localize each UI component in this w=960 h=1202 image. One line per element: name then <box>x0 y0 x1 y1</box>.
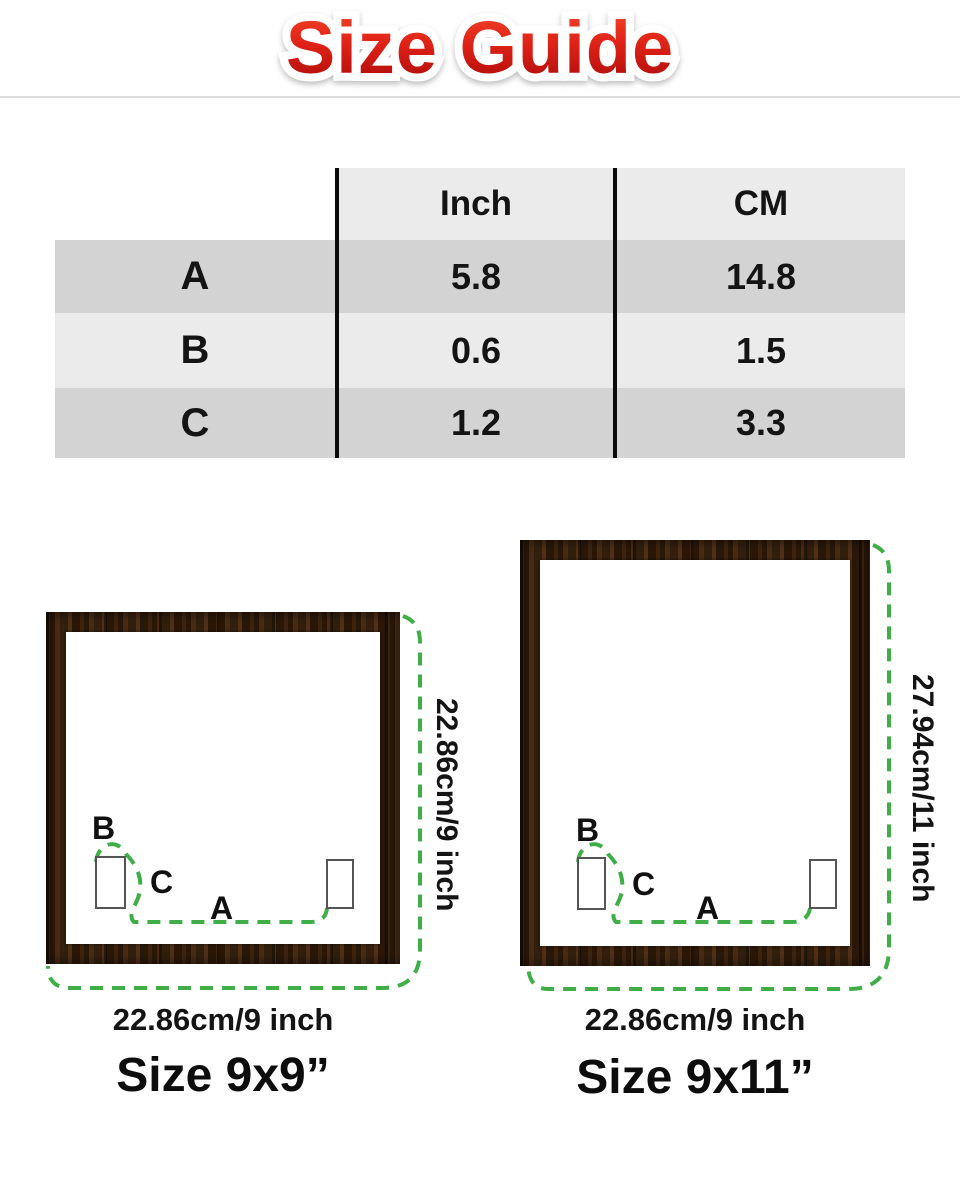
frame-diagram-9x9: B C A 22.86cm/9 inch 22.86cm/9 inch Size… <box>30 600 470 1180</box>
table-corner-cell <box>55 168 335 240</box>
dimension-bracket-path <box>48 616 420 988</box>
table-row-c: C 1.2 3.3 <box>55 388 905 458</box>
height-dimension-label-9x9: 22.86cm/9 inch <box>426 630 466 980</box>
page-title-text: Size Guide <box>286 6 674 89</box>
value-c-inch: 1.2 <box>335 388 617 458</box>
marker-a: A <box>696 892 719 924</box>
marker-c: C <box>632 868 655 900</box>
hanger-slot-left <box>96 857 125 908</box>
value-c-cm: 3.3 <box>617 388 905 458</box>
height-dimension-label-9x11: 27.94cm/11 inch <box>902 608 942 968</box>
marker-a: A <box>210 892 233 924</box>
row-label-c: C <box>55 388 335 458</box>
hanger-slot-right <box>810 860 836 908</box>
col-header-cm: CM <box>617 168 905 240</box>
value-b-inch: 0.6 <box>335 313 617 388</box>
marker-c: C <box>150 866 173 898</box>
value-a-cm: 14.8 <box>617 240 905 313</box>
width-dimension-label-9x9: 22.86cm/9 inch <box>46 1002 400 1038</box>
table-row-b: B 0.6 1.5 <box>55 313 905 388</box>
value-b-cm: 1.5 <box>617 313 905 388</box>
col-header-inch: Inch <box>335 168 617 240</box>
row-label-a: A <box>55 240 335 313</box>
marker-b: B <box>576 814 599 846</box>
size-title-9x9: Size 9x9” <box>46 1048 400 1103</box>
hanger-callout-path <box>578 844 810 922</box>
hanger-slot-left <box>578 858 605 909</box>
dimension-annotations-9x9 <box>30 600 470 1000</box>
hanger-slot-right <box>327 860 353 908</box>
marker-b: B <box>92 812 115 844</box>
size-title-9x11: Size 9x11” <box>520 1050 870 1105</box>
dimension-annotations-9x11 <box>500 528 960 1000</box>
row-label-b: B <box>55 313 335 388</box>
size-guide-page: Size Guide Size Guide Inch CM A 5.8 14.8… <box>0 0 960 1202</box>
page-title: Size Guide Size Guide <box>0 2 960 94</box>
width-dimension-label-9x11: 22.86cm/9 inch <box>520 1002 870 1038</box>
measurement-table: Inch CM A 5.8 14.8 B 0.6 1.5 C 1.2 3.3 <box>55 168 905 458</box>
table-row-a: A 5.8 14.8 <box>55 240 905 313</box>
header-divider <box>0 96 960 98</box>
table-header-row: Inch CM <box>55 168 905 240</box>
value-a-inch: 5.8 <box>335 240 617 313</box>
frame-diagram-9x11: B C A 27.94cm/11 inch 22.86cm/9 inch Siz… <box>500 528 960 1180</box>
